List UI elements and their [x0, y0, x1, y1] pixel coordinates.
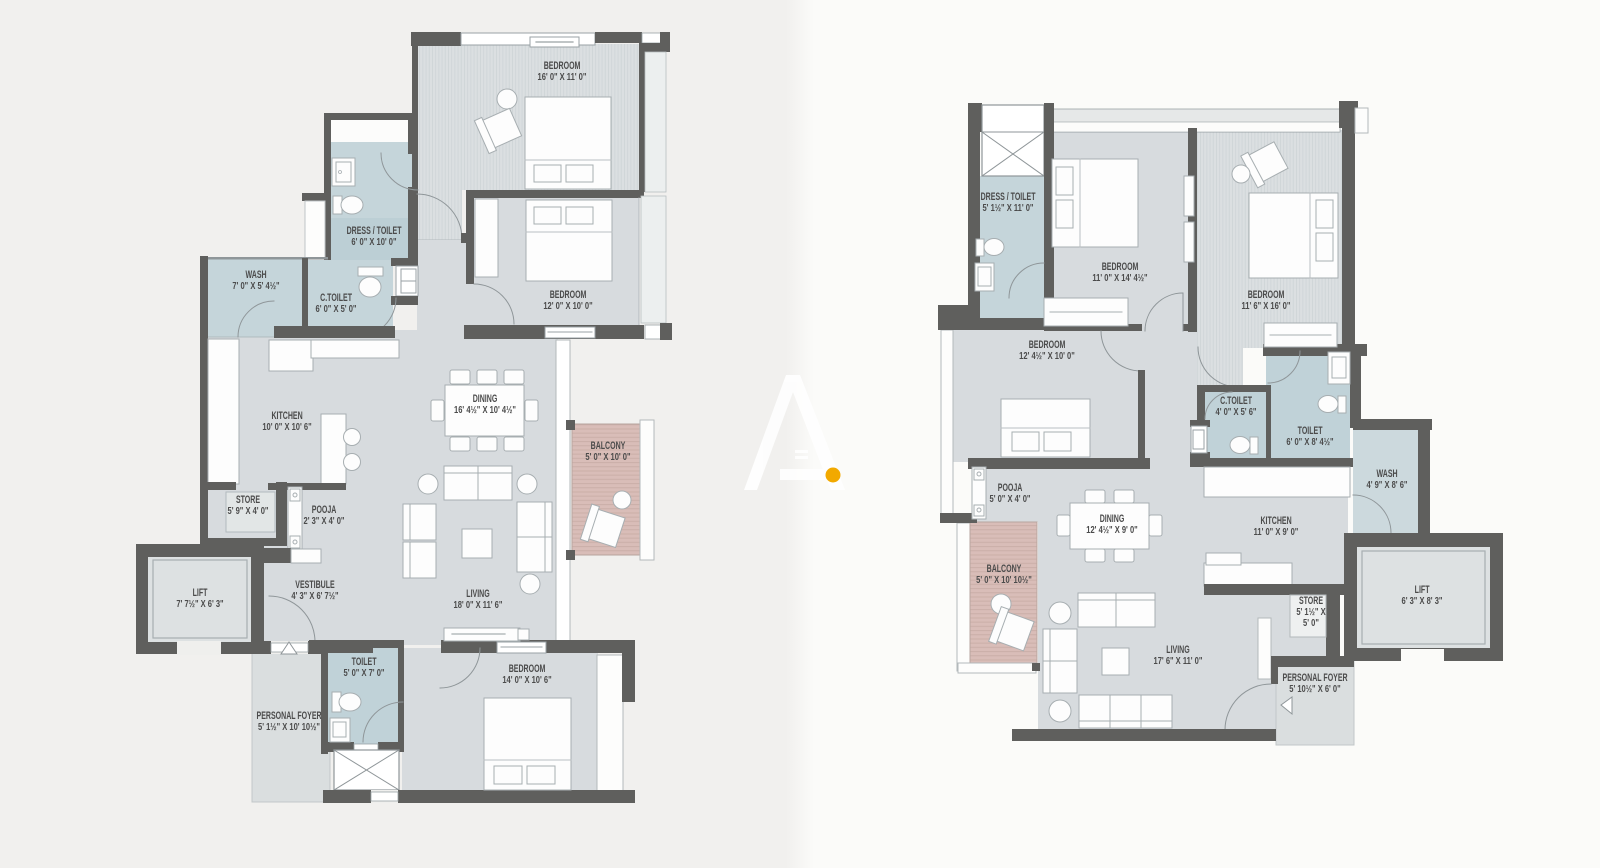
svg-text:16' 4½" X 10' 4½": 16' 4½" X 10' 4½" [454, 404, 516, 415]
svg-text:12' 4½" X 9' 0": 12' 4½" X 9' 0" [1086, 524, 1137, 535]
svg-text:KITCHEN: KITCHEN [1260, 514, 1291, 526]
svg-text:BALCONY: BALCONY [987, 562, 1022, 574]
svg-text:5' 0" X 10' 10½": 5' 0" X 10' 10½" [976, 574, 1032, 585]
svg-text:DRESS / TOILET: DRESS / TOILET [981, 190, 1036, 202]
svg-text:POOJA: POOJA [312, 503, 337, 515]
svg-text:VESTIBULE: VESTIBULE [295, 578, 334, 590]
svg-text:STORE: STORE [1299, 594, 1323, 606]
svg-text:17' 6" X 11' 0": 17' 6" X 11' 0" [1154, 655, 1203, 666]
svg-text:12' 4½" X 10' 0": 12' 4½" X 10' 0" [1019, 350, 1075, 361]
svg-text:5' 1½" X: 5' 1½" X [1296, 606, 1325, 617]
svg-text:18' 0" X 11' 6": 18' 0" X 11' 6" [454, 599, 503, 610]
svg-text:6' 0" X 8' 4½": 6' 0" X 8' 4½" [1286, 436, 1333, 447]
svg-text:WASH: WASH [1377, 467, 1398, 479]
svg-text:7' 7½" X 6' 3": 7' 7½" X 6' 3" [176, 598, 223, 609]
svg-text:TOILET: TOILET [352, 655, 377, 667]
svg-text:5' 1½" X 10' 10½": 5' 1½" X 10' 10½" [258, 721, 320, 732]
svg-text:C.TOILET: C.TOILET [1220, 394, 1252, 406]
svg-text:6' 0" X 5' 0": 6' 0" X 5' 0" [316, 303, 357, 314]
svg-text:POOJA: POOJA [998, 481, 1023, 493]
svg-text:STORE: STORE [236, 493, 260, 505]
svg-text:LIFT: LIFT [1415, 583, 1430, 595]
svg-text:PERSONAL FOYER: PERSONAL FOYER [257, 709, 322, 721]
svg-text:BEDROOM: BEDROOM [1029, 338, 1066, 350]
svg-text:12' 0" X 10' 0": 12' 0" X 10' 0" [543, 300, 592, 311]
svg-text:BEDROOM: BEDROOM [550, 288, 587, 300]
svg-text:2' 3" X 4' 0": 2' 3" X 4' 0" [304, 515, 345, 526]
svg-text:C.TOILET: C.TOILET [320, 291, 352, 303]
svg-text:BALCONY: BALCONY [591, 439, 626, 451]
svg-text:BEDROOM: BEDROOM [1248, 288, 1285, 300]
svg-text:PERSONAL FOYER: PERSONAL FOYER [1283, 671, 1348, 683]
svg-text:DRESS / TOILET: DRESS / TOILET [347, 224, 402, 236]
svg-text:11' 0" X 9' 0": 11' 0" X 9' 0" [1254, 526, 1299, 537]
svg-text:DINING: DINING [473, 392, 498, 404]
svg-text:10' 0" X 10' 6": 10' 0" X 10' 6" [262, 421, 311, 432]
svg-text:7' 0" X 5' 4½": 7' 0" X 5' 4½" [232, 280, 279, 291]
svg-text:LIVING: LIVING [1166, 643, 1189, 655]
svg-text:5' 10½" X 6' 0": 5' 10½" X 6' 0" [1289, 683, 1340, 694]
svg-text:KITCHEN: KITCHEN [271, 409, 302, 421]
svg-text:WASH: WASH [246, 268, 267, 280]
svg-text:5' 0" X 10' 0": 5' 0" X 10' 0" [585, 451, 630, 462]
svg-text:5' 1½" X 11' 0": 5' 1½" X 11' 0" [982, 202, 1033, 213]
svg-text:11' 6" X 16' 0": 11' 6" X 16' 0" [1242, 300, 1291, 311]
svg-text:BEDROOM: BEDROOM [544, 59, 581, 71]
svg-text:6' 3" X 8' 3": 6' 3" X 8' 3" [1402, 595, 1443, 606]
svg-text:5' 0" X 7' 0": 5' 0" X 7' 0" [344, 667, 385, 678]
svg-text:LIFT: LIFT [193, 586, 208, 598]
svg-text:TOILET: TOILET [1298, 424, 1323, 436]
svg-text:DINING: DINING [1100, 512, 1125, 524]
svg-text:BEDROOM: BEDROOM [509, 662, 546, 674]
svg-text:4' 3" X 6' 7½": 4' 3" X 6' 7½" [291, 590, 338, 601]
svg-text:LIVING: LIVING [466, 587, 489, 599]
svg-text:16' 0" X 11' 0": 16' 0" X 11' 0" [538, 71, 587, 82]
svg-text:4' 9" X 8' 6": 4' 9" X 8' 6" [1367, 479, 1408, 490]
svg-text:14' 0" X 10' 6": 14' 0" X 10' 6" [502, 674, 551, 685]
svg-text:5' 0": 5' 0" [1303, 617, 1319, 628]
svg-text:BEDROOM: BEDROOM [1102, 260, 1139, 272]
svg-text:11' 0" X 14' 4½": 11' 0" X 14' 4½" [1092, 272, 1147, 283]
svg-text:5' 9" X 4' 0": 5' 9" X 4' 0" [228, 505, 269, 516]
svg-text:6' 0" X 10' 0": 6' 0" X 10' 0" [351, 236, 396, 247]
svg-text:5' 0" X 4' 0": 5' 0" X 4' 0" [990, 493, 1031, 504]
svg-text:4' 0" X 5' 6": 4' 0" X 5' 6" [1216, 406, 1257, 417]
